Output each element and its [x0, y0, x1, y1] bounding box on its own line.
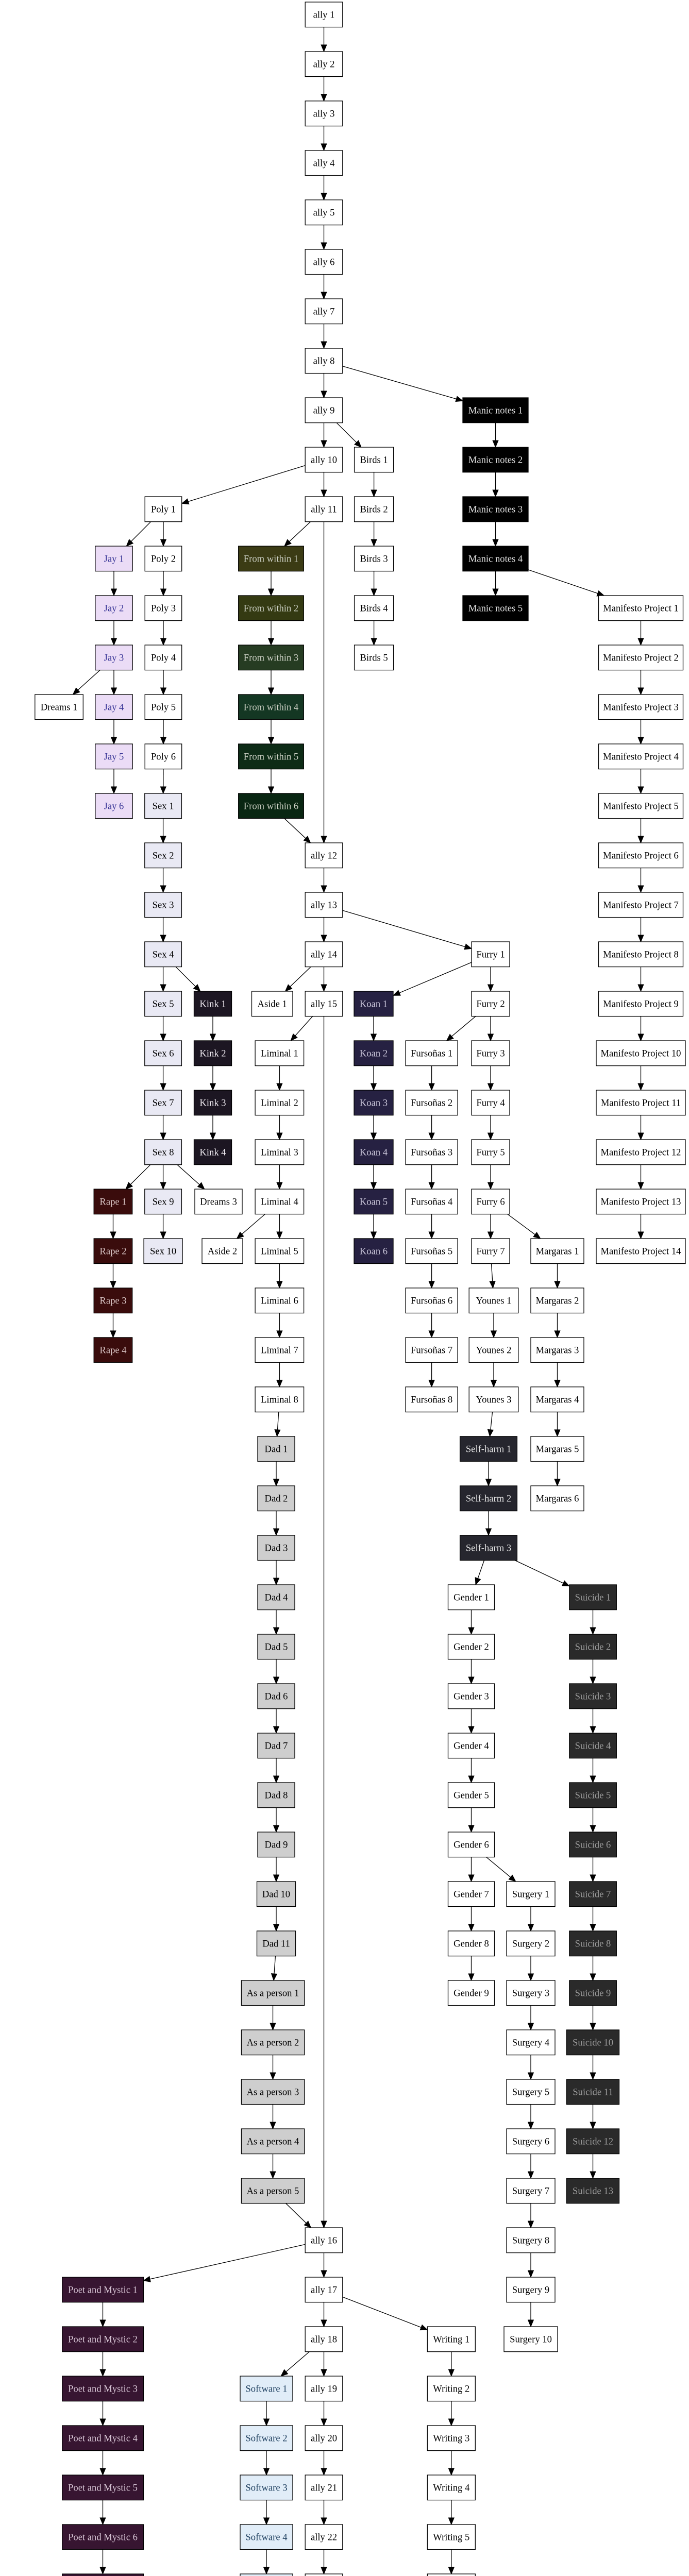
svg-text:Liminal 5: Liminal 5 [261, 1246, 298, 1257]
svg-text:Liminal 4: Liminal 4 [261, 1197, 298, 1208]
svg-text:Manifesto Project 7: Manifesto Project 7 [603, 900, 679, 911]
svg-text:ally 9: ally 9 [313, 405, 335, 416]
svg-text:Poly 3: Poly 3 [151, 603, 176, 614]
svg-text:Dad 5: Dad 5 [265, 1642, 288, 1653]
svg-text:Dad 11: Dad 11 [262, 1939, 290, 1950]
svg-text:Jay 4: Jay 4 [104, 702, 124, 713]
svg-text:Manifesto Project 5: Manifesto Project 5 [603, 801, 679, 812]
svg-text:Birds 1: Birds 1 [360, 455, 388, 466]
svg-text:Sex 5: Sex 5 [153, 999, 174, 1010]
svg-text:Fursoñas 6: Fursoñas 6 [411, 1296, 452, 1307]
svg-text:Manifesto Project 9: Manifesto Project 9 [603, 999, 679, 1010]
svg-text:Furry 6: Furry 6 [476, 1197, 505, 1208]
svg-text:Writing 2: Writing 2 [433, 2384, 469, 2395]
svg-text:Furry 2: Furry 2 [476, 999, 505, 1010]
svg-text:Dad 8: Dad 8 [265, 1790, 288, 1801]
svg-text:Younes 2: Younes 2 [476, 1345, 512, 1356]
svg-text:As a person 3: As a person 3 [247, 2087, 299, 2098]
svg-text:Manifesto Project 3: Manifesto Project 3 [603, 702, 679, 713]
svg-text:Margaras 5: Margaras 5 [536, 1444, 579, 1455]
svg-text:ally 15: ally 15 [311, 999, 337, 1010]
svg-text:Surgery 5: Surgery 5 [512, 2087, 549, 2098]
svg-text:ally 3: ally 3 [313, 109, 335, 120]
svg-text:Poet and Mystic 6: Poet and Mystic 6 [68, 2532, 138, 2543]
svg-text:Koan 2: Koan 2 [360, 1048, 388, 1059]
svg-text:From within 6: From within 6 [244, 801, 298, 812]
svg-text:Jay 6: Jay 6 [104, 801, 124, 812]
svg-text:Gender 1: Gender 1 [453, 1592, 489, 1603]
svg-text:Manifesto Project 13: Manifesto Project 13 [601, 1197, 681, 1208]
svg-text:Gender 5: Gender 5 [453, 1790, 489, 1801]
svg-text:Koan 6: Koan 6 [360, 1246, 388, 1257]
svg-text:Manic notes 4: Manic notes 4 [468, 554, 523, 565]
svg-text:Suicide 13: Suicide 13 [573, 2186, 613, 2197]
svg-text:Software 4: Software 4 [245, 2532, 287, 2543]
svg-text:Manifesto Project 6: Manifesto Project 6 [603, 851, 679, 861]
svg-text:Sex 3: Sex 3 [153, 900, 174, 911]
svg-text:Younes 1: Younes 1 [476, 1296, 512, 1307]
svg-text:Gender 8: Gender 8 [453, 1939, 489, 1950]
svg-text:Liminal 3: Liminal 3 [261, 1147, 298, 1158]
svg-text:Sex 7: Sex 7 [153, 1098, 174, 1109]
svg-text:Liminal 7: Liminal 7 [261, 1345, 298, 1356]
svg-text:Furry 5: Furry 5 [476, 1147, 505, 1158]
svg-text:Surgery 7: Surgery 7 [512, 2186, 549, 2197]
svg-text:Suicide 11: Suicide 11 [573, 2087, 613, 2098]
svg-text:Margaras 2: Margaras 2 [536, 1296, 579, 1307]
svg-text:Dad 3: Dad 3 [265, 1543, 288, 1554]
svg-text:Birds 5: Birds 5 [360, 653, 388, 664]
svg-text:Manic notes 1: Manic notes 1 [468, 405, 523, 416]
svg-text:ally 18: ally 18 [311, 2334, 337, 2345]
svg-text:Manifesto Project 8: Manifesto Project 8 [603, 950, 679, 960]
svg-text:Sex 10: Sex 10 [150, 1246, 176, 1257]
svg-text:From within 3: From within 3 [244, 653, 298, 664]
svg-text:Sex 6: Sex 6 [153, 1048, 174, 1059]
svg-text:ally 22: ally 22 [311, 2532, 337, 2543]
svg-text:Fursoñas 8: Fursoñas 8 [411, 1395, 452, 1405]
svg-text:Suicide 2: Suicide 2 [575, 1642, 611, 1653]
svg-text:Surgery 6: Surgery 6 [512, 2137, 549, 2147]
svg-text:Poly 2: Poly 2 [151, 554, 176, 565]
svg-text:Sex 8: Sex 8 [153, 1147, 174, 1158]
svg-text:Koan 4: Koan 4 [360, 1147, 388, 1158]
svg-text:Sex 9: Sex 9 [153, 1197, 174, 1208]
svg-text:Jay 2: Jay 2 [104, 603, 124, 614]
svg-text:Koan 3: Koan 3 [360, 1098, 388, 1109]
svg-text:Furry 4: Furry 4 [476, 1098, 505, 1109]
svg-text:Surgery 9: Surgery 9 [512, 2285, 549, 2296]
svg-text:ally 14: ally 14 [311, 950, 337, 960]
svg-text:Poet and Mystic 2: Poet and Mystic 2 [68, 2334, 138, 2345]
svg-text:ally 7: ally 7 [313, 307, 335, 317]
svg-text:Kink 1: Kink 1 [199, 999, 226, 1010]
svg-text:Suicide 8: Suicide 8 [575, 1939, 611, 1950]
svg-text:Dreams 1: Dreams 1 [41, 702, 78, 713]
svg-text:Self-harm 3: Self-harm 3 [466, 1543, 511, 1554]
svg-text:Manifesto Project 4: Manifesto Project 4 [603, 752, 679, 762]
svg-text:Kink 3: Kink 3 [199, 1098, 226, 1109]
svg-text:Fursoñas 3: Fursoñas 3 [411, 1147, 452, 1158]
svg-text:Younes 3: Younes 3 [476, 1395, 512, 1405]
svg-text:Dad 2: Dad 2 [265, 1494, 288, 1504]
svg-text:Manic notes 3: Manic notes 3 [468, 504, 523, 515]
svg-text:Surgery 10: Surgery 10 [510, 2334, 552, 2345]
svg-text:ally 19: ally 19 [311, 2384, 337, 2395]
svg-text:Suicide 4: Suicide 4 [575, 1741, 611, 1752]
svg-text:Manifesto Project 14: Manifesto Project 14 [601, 1246, 681, 1257]
svg-text:Poet and Mystic 4: Poet and Mystic 4 [68, 2433, 138, 2444]
svg-text:Dad 4: Dad 4 [265, 1592, 288, 1603]
svg-text:ally 17: ally 17 [311, 2285, 337, 2296]
svg-text:Sex 1: Sex 1 [153, 801, 174, 812]
svg-text:ally 16: ally 16 [311, 2235, 337, 2246]
svg-text:Suicide 5: Suicide 5 [575, 1790, 611, 1801]
svg-text:Manifesto Project 12: Manifesto Project 12 [601, 1147, 681, 1158]
svg-text:Surgery 4: Surgery 4 [512, 2038, 549, 2048]
svg-text:Gender 4: Gender 4 [453, 1741, 489, 1752]
svg-text:ally 20: ally 20 [311, 2433, 337, 2444]
svg-text:ally 13: ally 13 [311, 900, 337, 911]
svg-text:ally 5: ally 5 [313, 208, 335, 218]
svg-text:ally 2: ally 2 [313, 59, 335, 70]
svg-text:Dad 7: Dad 7 [265, 1741, 288, 1752]
svg-text:Koan 1: Koan 1 [360, 999, 388, 1010]
svg-text:ally 6: ally 6 [313, 257, 335, 268]
svg-text:Fursoñas 7: Fursoñas 7 [411, 1345, 452, 1356]
svg-text:Rape 2: Rape 2 [99, 1246, 126, 1257]
svg-text:Gender 9: Gender 9 [453, 1988, 489, 1999]
svg-text:Furry 3: Furry 3 [476, 1048, 505, 1059]
svg-text:Software 1: Software 1 [245, 2384, 287, 2395]
svg-text:From within 4: From within 4 [244, 702, 298, 713]
svg-text:Manic notes 5: Manic notes 5 [468, 603, 523, 614]
svg-text:Furry 1: Furry 1 [476, 950, 505, 960]
svg-text:Software 2: Software 2 [245, 2433, 287, 2444]
svg-text:Rape 4: Rape 4 [99, 1345, 126, 1356]
svg-text:Aside 1: Aside 1 [258, 999, 287, 1010]
svg-text:Suicide 9: Suicide 9 [575, 1988, 611, 1999]
svg-text:Jay 5: Jay 5 [104, 752, 124, 762]
svg-text:Furry 7: Furry 7 [476, 1246, 505, 1257]
svg-text:Rape 1: Rape 1 [99, 1197, 126, 1208]
svg-text:As a person 5: As a person 5 [247, 2186, 299, 2197]
svg-text:Dad 10: Dad 10 [262, 1889, 290, 1900]
svg-text:From within 1: From within 1 [244, 554, 298, 565]
svg-text:Gender 3: Gender 3 [453, 1691, 489, 1702]
svg-text:Kink 4: Kink 4 [199, 1147, 226, 1158]
svg-text:Liminal 2: Liminal 2 [261, 1098, 298, 1109]
svg-text:As a person 4: As a person 4 [247, 2137, 299, 2147]
svg-text:Liminal 8: Liminal 8 [261, 1395, 298, 1405]
svg-text:Poly 6: Poly 6 [151, 752, 176, 762]
svg-text:Fursoñas 5: Fursoñas 5 [411, 1246, 452, 1257]
svg-text:ally 21: ally 21 [311, 2483, 337, 2494]
svg-text:Software 3: Software 3 [245, 2483, 287, 2494]
svg-text:Self-harm 2: Self-harm 2 [466, 1494, 511, 1504]
svg-text:Suicide 10: Suicide 10 [573, 2038, 613, 2048]
svg-text:Dad 6: Dad 6 [265, 1691, 288, 1702]
svg-text:Writing 3: Writing 3 [433, 2433, 469, 2444]
svg-text:Poly 5: Poly 5 [151, 702, 176, 713]
svg-text:Birds 2: Birds 2 [360, 504, 388, 515]
svg-text:Jay 3: Jay 3 [104, 653, 124, 664]
svg-text:Manifesto Project 2: Manifesto Project 2 [603, 653, 679, 664]
svg-text:Kink 2: Kink 2 [199, 1048, 226, 1059]
svg-text:Manic notes 2: Manic notes 2 [468, 455, 523, 466]
svg-text:Birds 4: Birds 4 [360, 603, 388, 614]
svg-text:Aside 2: Aside 2 [208, 1246, 237, 1257]
svg-text:Surgery 3: Surgery 3 [512, 1988, 549, 1999]
svg-text:Rape 3: Rape 3 [99, 1296, 126, 1307]
svg-text:Margaras 1: Margaras 1 [536, 1246, 579, 1257]
svg-text:Poet and Mystic 1: Poet and Mystic 1 [68, 2285, 138, 2296]
svg-text:Poly 4: Poly 4 [151, 653, 176, 664]
svg-text:As a person 2: As a person 2 [247, 2038, 299, 2048]
svg-text:Manifesto Project 11: Manifesto Project 11 [601, 1098, 681, 1109]
svg-text:Birds 3: Birds 3 [360, 554, 388, 565]
svg-text:ally 8: ally 8 [313, 356, 335, 367]
svg-text:Writing 1: Writing 1 [433, 2334, 469, 2345]
svg-text:Manifesto Project 10: Manifesto Project 10 [601, 1048, 681, 1059]
svg-text:Dreams 3: Dreams 3 [200, 1197, 237, 1208]
svg-text:Gender 6: Gender 6 [453, 1840, 489, 1851]
svg-text:ally 4: ally 4 [313, 158, 335, 169]
svg-text:Koan 5: Koan 5 [360, 1197, 388, 1208]
svg-text:ally 10: ally 10 [311, 455, 337, 466]
svg-text:ally 12: ally 12 [311, 851, 337, 861]
svg-text:ally 1: ally 1 [313, 10, 335, 21]
svg-text:Dad 1: Dad 1 [265, 1444, 288, 1455]
svg-text:Poet and Mystic 5: Poet and Mystic 5 [68, 2483, 138, 2494]
svg-text:ally 11: ally 11 [311, 504, 337, 515]
svg-text:Writing 4: Writing 4 [433, 2483, 469, 2494]
svg-text:Suicide 3: Suicide 3 [575, 1691, 611, 1702]
svg-text:Jay 1: Jay 1 [104, 554, 124, 565]
svg-text:Poly 1: Poly 1 [151, 504, 176, 515]
svg-text:Surgery 2: Surgery 2 [512, 1939, 549, 1950]
svg-text:Margaras 4: Margaras 4 [536, 1395, 579, 1405]
svg-text:Sex 4: Sex 4 [153, 950, 174, 960]
svg-text:Suicide 7: Suicide 7 [575, 1889, 611, 1900]
svg-text:Sex 2: Sex 2 [153, 851, 174, 861]
svg-text:Liminal 6: Liminal 6 [261, 1296, 298, 1307]
svg-text:Self-harm 1: Self-harm 1 [466, 1444, 511, 1455]
svg-text:Margaras 3: Margaras 3 [536, 1345, 579, 1356]
svg-text:Gender 2: Gender 2 [453, 1642, 489, 1653]
svg-text:Margaras 6: Margaras 6 [536, 1494, 579, 1504]
svg-text:Writing 5: Writing 5 [433, 2532, 469, 2543]
svg-text:Fursoñas 2: Fursoñas 2 [411, 1098, 452, 1109]
svg-text:Fursoñas 4: Fursoñas 4 [411, 1197, 452, 1208]
svg-text:Gender 7: Gender 7 [453, 1889, 489, 1900]
svg-text:From within 2: From within 2 [244, 603, 298, 614]
svg-text:Poet and Mystic 3: Poet and Mystic 3 [68, 2384, 138, 2395]
svg-text:Suicide 1: Suicide 1 [575, 1592, 611, 1603]
svg-text:Surgery 1: Surgery 1 [512, 1889, 549, 1900]
svg-text:Surgery 8: Surgery 8 [512, 2235, 549, 2246]
svg-text:Fursoñas 1: Fursoñas 1 [411, 1048, 452, 1059]
svg-text:Manifesto Project 1: Manifesto Project 1 [603, 603, 679, 614]
svg-text:Dad 9: Dad 9 [265, 1840, 288, 1851]
svg-text:Liminal 1: Liminal 1 [261, 1048, 298, 1059]
svg-text:As a person 1: As a person 1 [247, 1988, 299, 1999]
svg-text:Suicide 6: Suicide 6 [575, 1840, 611, 1851]
svg-text:Suicide 12: Suicide 12 [573, 2137, 613, 2147]
svg-text:From within 5: From within 5 [244, 752, 298, 762]
